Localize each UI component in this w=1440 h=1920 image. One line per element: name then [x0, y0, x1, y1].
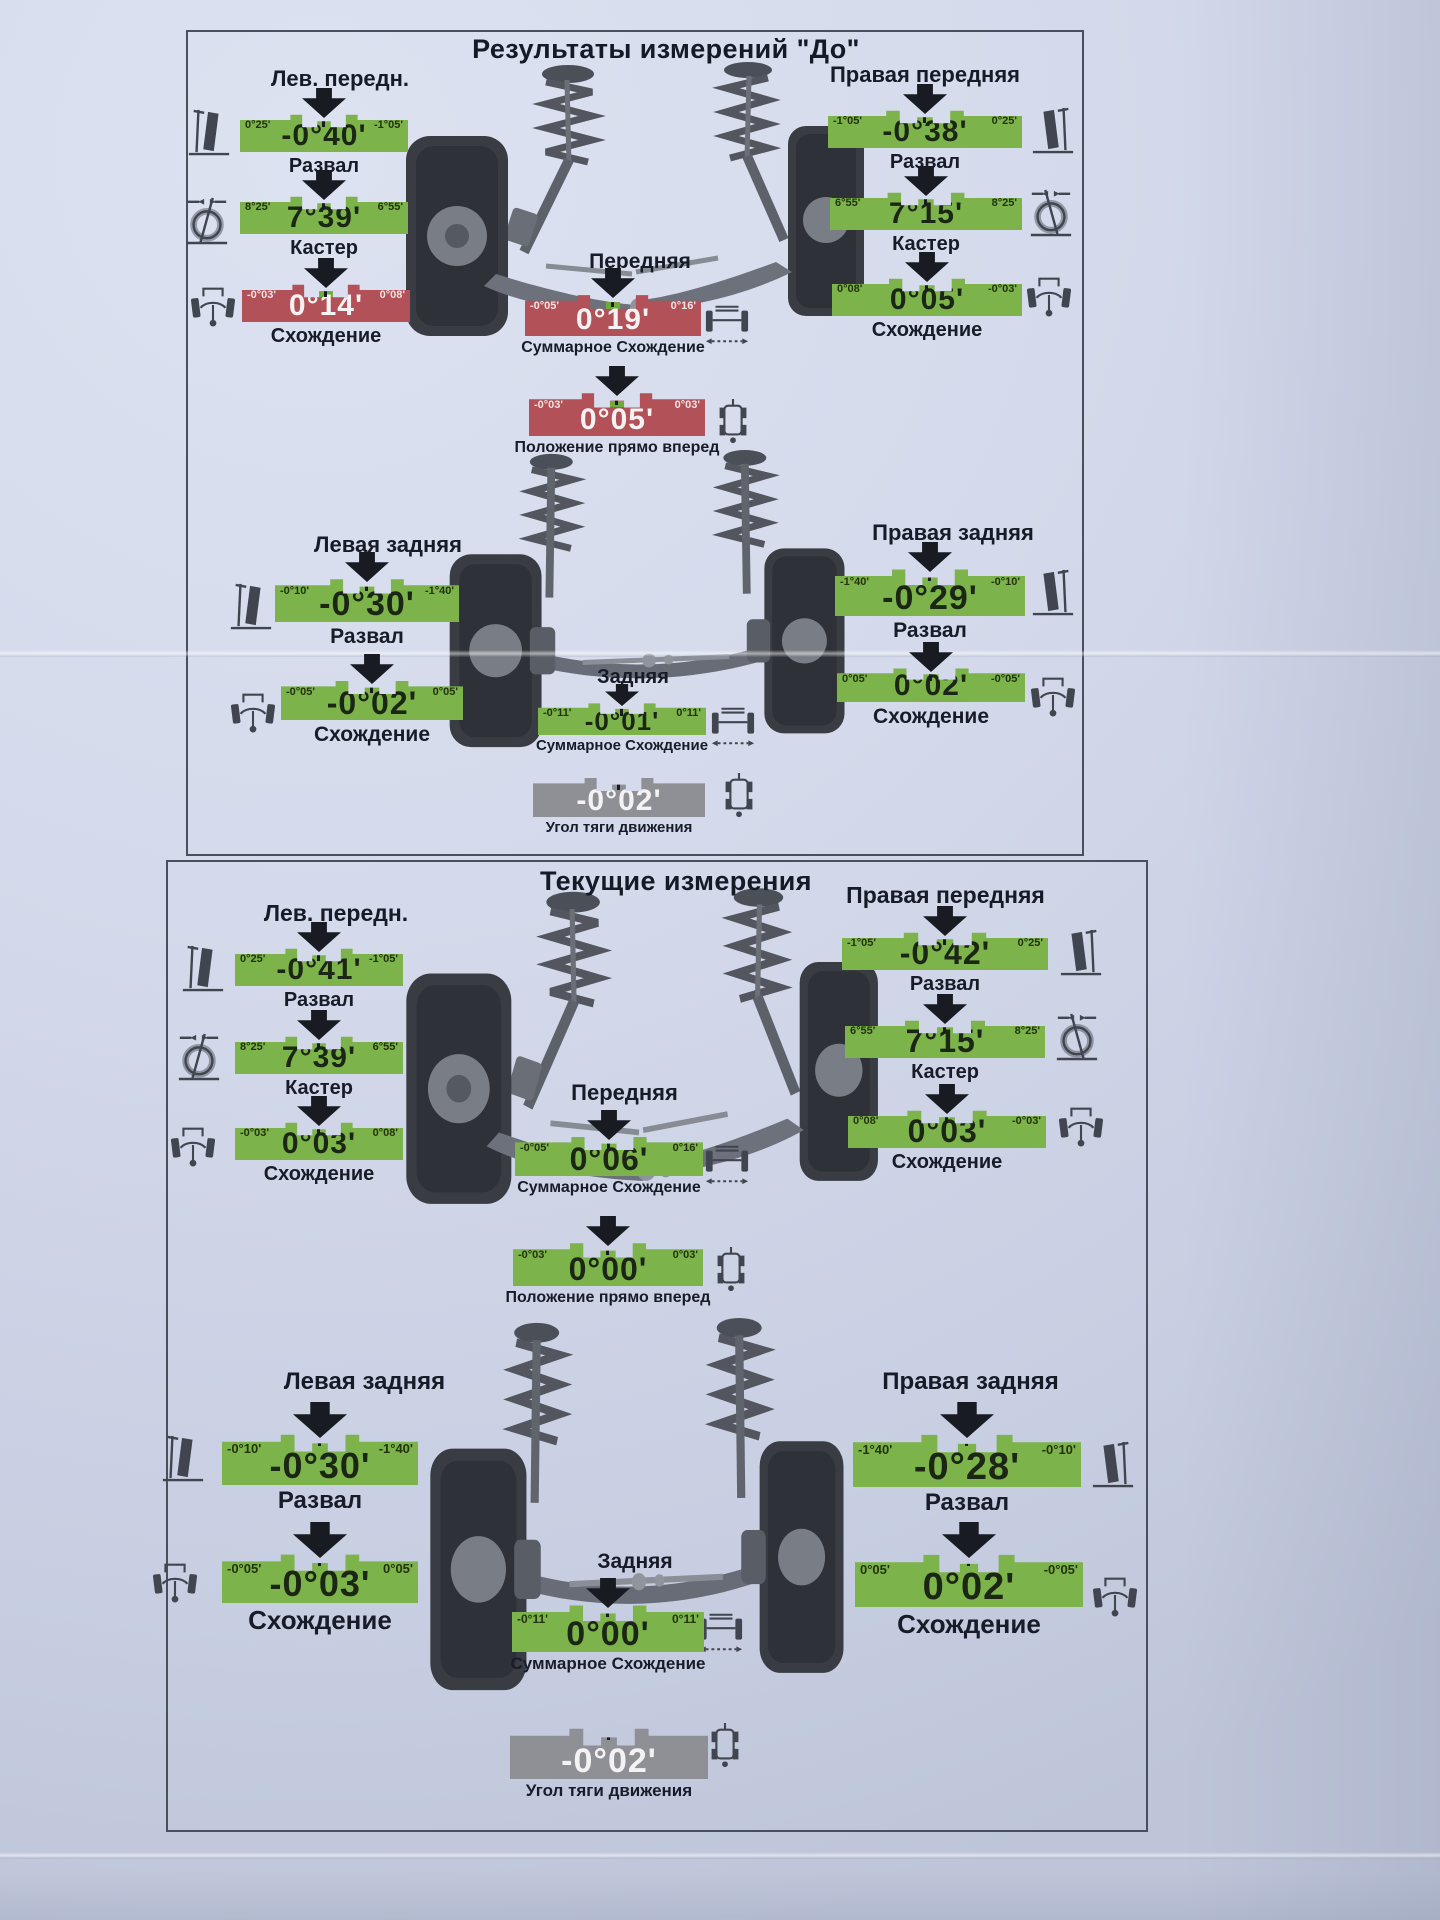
measure-value: 0°00'	[512, 1617, 704, 1652]
measure-caption: Схождение	[782, 319, 1072, 341]
measure-bar: -0°02'	[510, 1725, 708, 1779]
arrow-down-icon	[297, 922, 341, 952]
paper-fold-crease	[0, 1852, 1440, 1859]
measure-bar: -1°40' -0°10' -0°29'	[835, 566, 1025, 616]
measure-s2-front-left-caster: 8°25' 6°55' 7°39' Кастер	[235, 1010, 403, 1099]
camber-icon	[180, 942, 226, 994]
measure-bar: -1°05' 0°25' -0°38'	[828, 108, 1022, 148]
wheel-label-front-right: Правая передняя	[833, 882, 1058, 909]
camber-icon	[1030, 104, 1076, 156]
paper-edge-shade	[0, 1870, 1440, 1920]
measure-caption: Развал	[785, 619, 1075, 642]
measure-bar: -0°10' -1°40' -0°30'	[222, 1431, 418, 1485]
arrow-down-icon	[302, 170, 346, 200]
axle-label-front: Передняя	[542, 1080, 707, 1106]
arrow-down-icon	[293, 1522, 347, 1558]
measure-value: 0°14'	[242, 291, 410, 322]
measure-caption: Суммарное Схождение	[475, 339, 751, 357]
measure-caption: Суммарное Схождение	[488, 738, 756, 755]
arrow-down-icon	[350, 654, 394, 684]
measure-bar: 0°08' -0°03' 0°05'	[832, 276, 1022, 316]
arrow-down-icon	[302, 88, 346, 118]
arrow-down-icon	[586, 1216, 630, 1246]
measure-caption: Суммарное Схождение	[462, 1655, 754, 1674]
measure-bar: 0°25' -1°05' -0°40'	[240, 112, 408, 152]
measure-bar: 6°55' 8°25' 7°15'	[830, 190, 1022, 230]
measure-caption: Кастер	[795, 1061, 1095, 1083]
camber-icon	[1090, 1438, 1136, 1490]
measure-bar: -1°40' -0°10' -0°28'	[853, 1431, 1081, 1487]
measure-value: 0°19'	[525, 305, 701, 336]
arrow-down-icon	[587, 1110, 631, 1140]
measure-s1-front-right-caster: 6°55' 8°25' 7°15' Кастер	[830, 166, 1022, 255]
measure-value: 0°00'	[513, 1253, 703, 1286]
measure-caption: Положение прямо вперед	[463, 1289, 753, 1307]
measure-bar: -0°11' 0°11' 0°00'	[512, 1602, 704, 1652]
measure-value: -0°30'	[222, 1448, 418, 1485]
measure-caption: Угол тяги движения	[460, 1782, 758, 1801]
measure-value: 7°39'	[235, 1043, 403, 1074]
measure-bar: -1°05' 0°25' -0°42'	[842, 930, 1048, 970]
measure-bar: -0°05' 0°05' -0°03'	[222, 1551, 418, 1603]
measure-bar: 8°25' 6°55' 7°39'	[235, 1034, 403, 1074]
measure-value: 7°15'	[845, 1025, 1045, 1058]
arrow-down-icon	[904, 166, 948, 196]
measure-caption: Развал	[172, 1488, 468, 1514]
arrow-down-icon	[925, 1084, 969, 1114]
measure-caption: Положение прямо вперед	[479, 439, 755, 457]
measure-value: -0°29'	[835, 581, 1025, 616]
caster-icon	[176, 1030, 222, 1082]
measure-bar: -0°11' 0°11' -0°01'	[538, 701, 706, 735]
toe-icon	[1058, 1098, 1104, 1150]
measure-caption: Кастер	[190, 237, 458, 259]
measure-value: 0°02'	[837, 671, 1025, 702]
measure-s1-front-left-camber: 0°25' -1°05' -0°40' Развал	[240, 88, 408, 177]
toe-icon	[1026, 268, 1072, 320]
camber-icon	[186, 106, 232, 158]
measure-value: 0°02'	[855, 1568, 1083, 1607]
measure-value: -0°30'	[275, 587, 459, 622]
measure-bar: 6°55' 8°25' 7°15'	[845, 1018, 1045, 1058]
measure-bar: -0°03' 0°03' 0°00'	[513, 1240, 703, 1286]
alignment-report-photo: Результаты измерений "До" Лев. передн. П…	[0, 0, 1440, 1920]
measure-bar: -0°05' 0°16' 0°06'	[515, 1134, 703, 1176]
vehicle-top-icon	[716, 770, 762, 822]
arrow-down-icon	[586, 1578, 630, 1608]
paper-fold-crease	[0, 650, 1440, 657]
measure-s1-rear-left-camber: -0°10' -1°40' -0°30' Развал	[275, 552, 459, 648]
measure-value: -0°02'	[510, 1744, 708, 1779]
measure-value: 0°05'	[832, 285, 1022, 316]
measure-s2-front-left-toe: -0°03' 0°08' 0°03' Схождение	[235, 1096, 403, 1185]
measure-value: 0°06'	[515, 1143, 703, 1176]
measure-caption: Развал	[803, 1490, 1131, 1516]
measure-s1-rear-right-toe: 0°05' -0°05' 0°02' Схождение	[837, 642, 1025, 728]
measure-caption: Развал	[185, 989, 453, 1011]
measure-caption: Схождение	[192, 325, 460, 347]
measure-s1-rear-right-camber: -1°40' -0°10' -0°29' Развал	[835, 542, 1025, 642]
measure-bar: -0°05' 0°05' -0°02'	[281, 678, 463, 720]
arrow-down-icon	[605, 684, 639, 706]
measure-caption: Схождение	[805, 1610, 1133, 1639]
wheel-label-rear-right: Правая задняя	[858, 1368, 1083, 1396]
measure-s1-rear-left-toe: -0°05' 0°05' -0°02' Схождение	[281, 654, 463, 746]
measure-bar: 8°25' 6°55' 7°39'	[240, 194, 408, 234]
measure-bar: -0°03' 0°08' 0°14'	[242, 282, 410, 322]
camber-icon	[160, 1432, 206, 1484]
measure-caption: Развал	[792, 973, 1098, 995]
measure-s1-rear-total-toe: -0°11' 0°11' -0°01' Суммарное Схождение	[538, 684, 706, 755]
caster-icon	[1028, 186, 1074, 238]
arrow-down-icon	[903, 84, 947, 114]
arrow-down-icon	[297, 1096, 341, 1126]
measure-caption: Схождение	[231, 723, 513, 746]
measure-value: -0°02'	[281, 687, 463, 720]
measure-value: -0°40'	[240, 121, 408, 152]
toe-icon	[190, 278, 236, 330]
vehicle-top-icon	[702, 1720, 748, 1772]
arrow-down-icon	[304, 258, 348, 288]
measure-s2-front-right-toe: 0°08' -0°03' 0°03' Схождение	[848, 1084, 1046, 1173]
measure-caption: Угол тяги движения	[483, 820, 755, 837]
measure-value: -0°01'	[538, 708, 706, 735]
arrow-down-icon	[923, 906, 967, 936]
paper-edge-shade	[1180, 0, 1440, 1920]
measure-bar: 0°25' -1°05' -0°41'	[235, 946, 403, 986]
measure-s1-front-left-toe: -0°03' 0°08' 0°14' Схождение	[242, 258, 410, 347]
measure-caption: Развал	[225, 625, 509, 648]
measure-s2-rear-right-camber: -1°40' -0°10' -0°28' Развал	[853, 1402, 1081, 1516]
measure-bar: 0°05' -0°05' 0°02'	[855, 1551, 1083, 1607]
arrow-down-icon	[293, 1402, 347, 1438]
axle-icon	[698, 1606, 744, 1658]
caster-icon	[1054, 1010, 1100, 1062]
arrow-down-icon	[905, 252, 949, 282]
measure-s1-thrust-angle: -0°02' Угол тяги движения	[533, 775, 705, 837]
measure-s2-front-left-camber: 0°25' -1°05' -0°41' Развал	[235, 922, 403, 1011]
measure-value: -0°02'	[533, 786, 705, 817]
measure-caption: Схождение	[787, 705, 1075, 728]
measure-value: -0°41'	[235, 955, 403, 986]
measure-bar: -0°05' 0°16' 0°19'	[525, 292, 701, 336]
measure-s2-front-total-toe: -0°05' 0°16' 0°06' Суммарное Схождение	[515, 1110, 703, 1197]
arrow-down-icon	[591, 268, 635, 298]
measure-s1-front-right-toe: 0°08' -0°03' 0°05' Схождение	[832, 252, 1022, 341]
arrow-down-icon	[908, 542, 952, 572]
arrow-down-icon	[909, 642, 953, 672]
toe-icon	[152, 1554, 198, 1606]
arrow-down-icon	[940, 1402, 994, 1438]
measure-caption: Схождение	[185, 1163, 453, 1185]
measure-s2-front-right-camber: -1°05' 0°25' -0°42' Развал	[842, 906, 1048, 995]
measure-caption: Суммарное Схождение	[465, 1179, 753, 1197]
measure-s1-front-total-toe: -0°05' 0°16' 0°19' Суммарное Схождение	[525, 268, 701, 357]
measure-value: 7°39'	[240, 203, 408, 234]
measure-bar: -0°03' 0°03' 0°05'	[529, 390, 705, 436]
measure-bar: -0°03' 0°08' 0°03'	[235, 1120, 403, 1160]
camber-icon	[1030, 566, 1076, 618]
measure-s2-thrust-angle: -0°02' Угол тяги движения	[510, 1725, 708, 1801]
measure-s1-front-straight-ahead: -0°03' 0°03' 0°05' Положение прямо впере…	[529, 366, 705, 457]
arrow-down-icon	[297, 1010, 341, 1040]
axle-label-rear: Задняя	[560, 1550, 710, 1574]
measure-value: 7°15'	[830, 199, 1022, 230]
measure-value: 0°05'	[529, 405, 705, 436]
wheel-label-rear-left: Левая задняя	[252, 1368, 477, 1396]
arrow-down-icon	[942, 1522, 996, 1558]
measure-bar: -0°02'	[533, 775, 705, 817]
measure-s2-rear-left-toe: -0°05' 0°05' -0°03' Схождение	[222, 1522, 418, 1635]
measure-value: -0°28'	[853, 1448, 1081, 1487]
measure-bar: -0°10' -1°40' -0°30'	[275, 576, 459, 622]
arrow-down-icon	[923, 994, 967, 1024]
measure-value: 0°03'	[235, 1129, 403, 1160]
measure-s2-rear-total-toe: -0°11' 0°11' 0°00' Суммарное Схождение	[512, 1578, 704, 1674]
measure-value: 0°03'	[848, 1115, 1046, 1148]
measure-value: -0°03'	[222, 1566, 418, 1603]
measure-s1-front-left-caster: 8°25' 6°55' 7°39' Кастер	[240, 170, 408, 259]
arrow-down-icon	[345, 552, 389, 582]
measure-value: -0°38'	[828, 117, 1022, 148]
measure-caption: Схождение	[798, 1151, 1096, 1173]
measure-s2-front-right-caster: 6°55' 8°25' 7°15' Кастер	[845, 994, 1045, 1083]
measure-s2-front-straight-ahead: -0°03' 0°03' 0°00' Положение прямо впере…	[513, 1216, 703, 1307]
measure-bar: 0°08' -0°03' 0°03'	[848, 1108, 1046, 1148]
measure-value: -0°42'	[842, 937, 1048, 970]
measure-caption: Схождение	[172, 1606, 468, 1635]
camber-icon	[1058, 926, 1104, 978]
measure-s2-rear-right-toe: 0°05' -0°05' 0°02' Схождение	[855, 1522, 1083, 1639]
section-before-title: Результаты измерений "До"	[386, 34, 946, 65]
arrow-down-icon	[595, 366, 639, 396]
measure-s2-rear-left-camber: -0°10' -1°40' -0°30' Развал	[222, 1402, 418, 1514]
measure-s1-front-right-camber: -1°05' 0°25' -0°38' Развал	[828, 84, 1022, 173]
